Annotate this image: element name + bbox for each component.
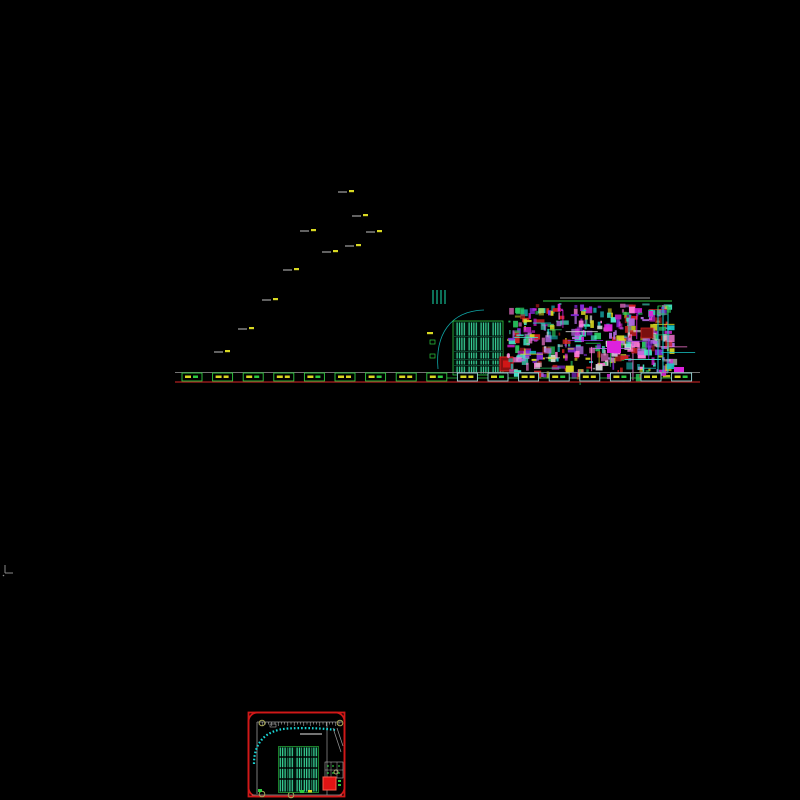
- cad-canvas[interactable]: [0, 0, 800, 800]
- dimension-leaders: [214, 190, 382, 352]
- detail-callout-drawing: [249, 713, 345, 798]
- auditorium-seating: [427, 290, 513, 375]
- column-footing-row: [175, 373, 700, 383]
- model-space: [0, 0, 800, 800]
- ucs-corner-icon: [3, 565, 13, 576]
